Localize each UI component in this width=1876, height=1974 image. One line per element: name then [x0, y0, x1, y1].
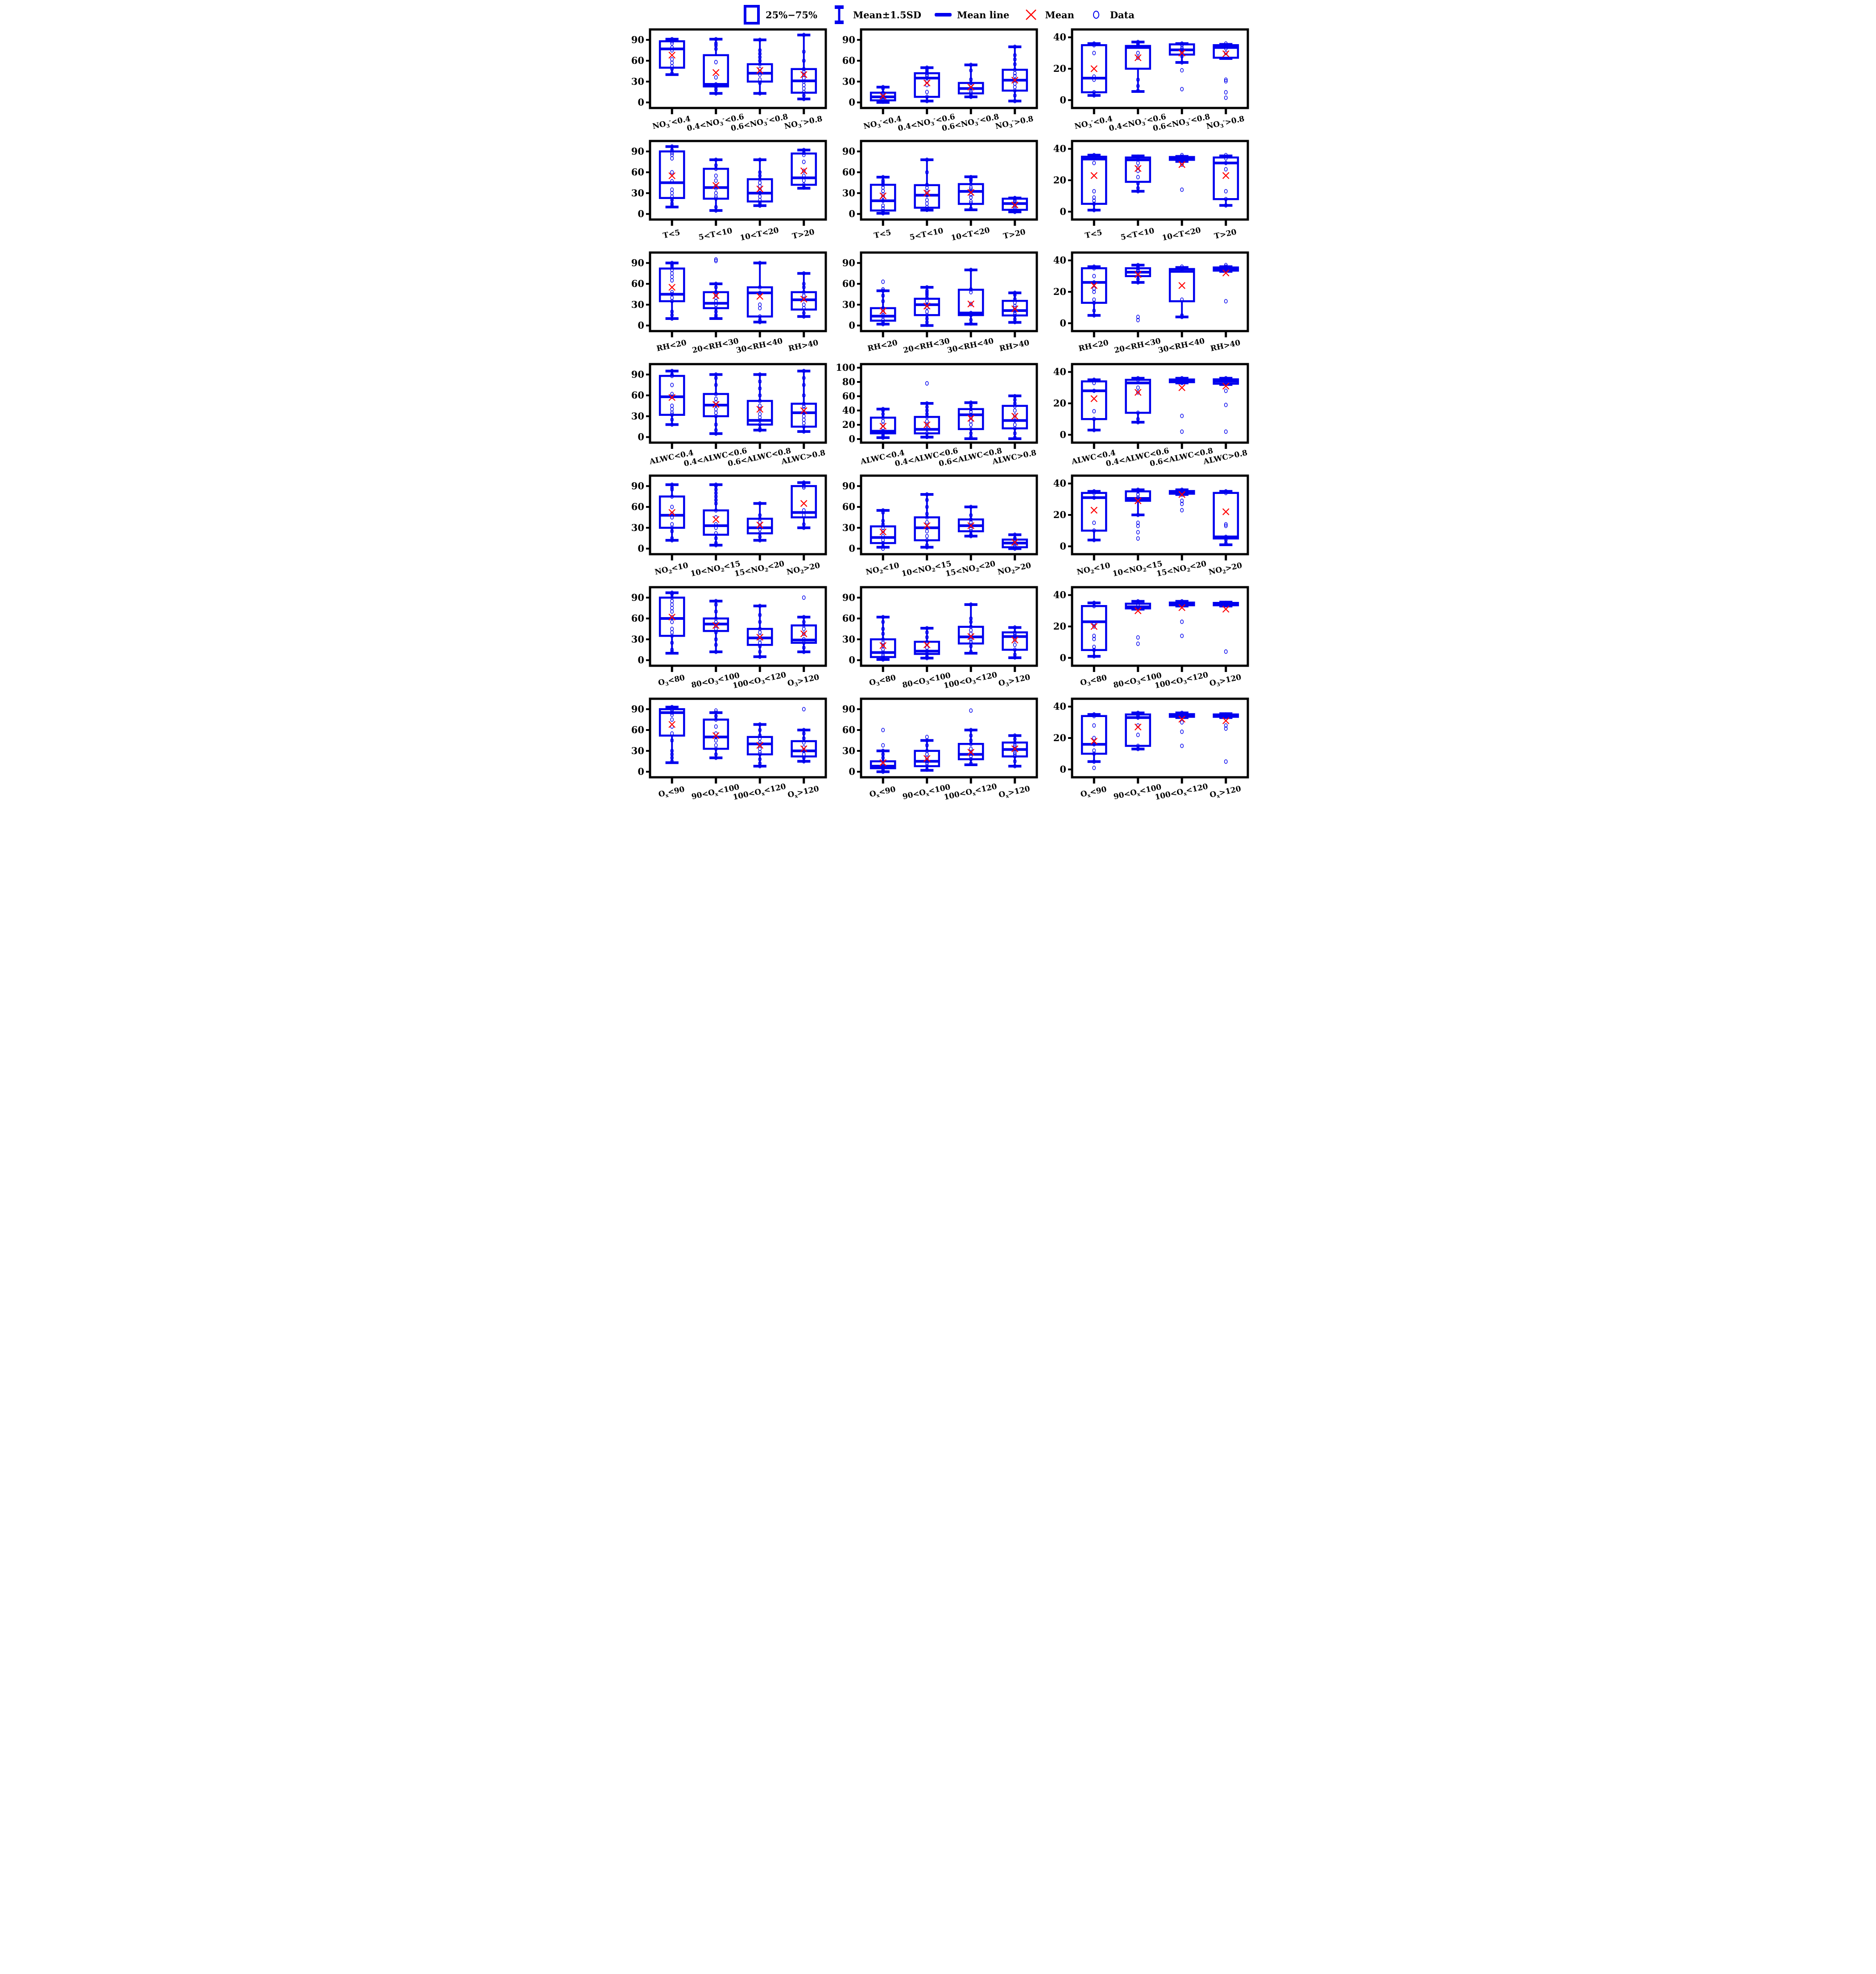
box-group-2 — [748, 502, 772, 542]
x-tick-label: T>20 — [1213, 228, 1238, 241]
whisker-cap-top — [709, 158, 722, 161]
whisker-cap-bottom — [753, 92, 766, 95]
iqr-box — [871, 527, 895, 543]
mean-line — [871, 199, 895, 202]
box-group-3 — [1002, 394, 1027, 440]
y-tick-label: 90 — [631, 703, 644, 714]
iqr-box — [1082, 157, 1106, 204]
iqr-box — [959, 184, 983, 204]
iqr-box — [915, 299, 939, 315]
x-tick-label: Ox<90 — [869, 785, 897, 800]
mean-line — [748, 72, 772, 75]
y-tick-label: 30 — [842, 299, 855, 310]
whisker-cap-bottom — [964, 652, 977, 655]
x-tick-label: 15<NO2<20 — [1156, 559, 1208, 579]
y-tick-label: 20 — [1053, 286, 1066, 297]
data-point-icon — [1225, 96, 1227, 100]
y-tick-label: 90 — [631, 369, 644, 380]
whisker-cap-bottom — [709, 651, 722, 653]
whisker-cap-bottom — [964, 535, 977, 538]
whisker-cap-bottom — [797, 527, 810, 529]
x-tick-label: O3<80 — [657, 673, 686, 688]
boxplot-panel-r4-c2: 020406080100ALWC<0.40.4<ALWC<0.60.6<ALWC… — [832, 361, 1042, 473]
iqr-box — [704, 55, 728, 87]
x-tick-label: NO2>20 — [786, 561, 821, 577]
x-tick-label: T>20 — [1002, 228, 1027, 241]
box-group-2 — [959, 709, 983, 766]
x-tick-label: Ox>120 — [787, 784, 820, 800]
mean-x-icon — [1021, 4, 1041, 25]
data-point-icon — [925, 382, 928, 385]
box-group-0 — [1082, 489, 1106, 542]
box-group-0 — [1082, 153, 1106, 212]
y-tick-label: 60 — [631, 724, 644, 735]
whisker-cap-top — [876, 750, 889, 752]
x-tick-label: NO2<10 — [865, 561, 900, 577]
x-tick-label: 15<NO2<20 — [944, 559, 996, 579]
whisker-cap-top — [709, 282, 722, 285]
mean-line — [1002, 419, 1027, 422]
box-group-1 — [704, 709, 728, 759]
data-point-icon — [1180, 634, 1183, 638]
mean-line — [748, 291, 772, 294]
mean-line — [791, 411, 816, 414]
box-group-0 — [871, 280, 895, 326]
mean-line — [660, 181, 684, 184]
whisker-cap-top — [1008, 394, 1021, 397]
y-tick-label: 0 — [849, 433, 855, 444]
x-tick-label: NO3->0.8 — [1205, 113, 1246, 132]
whisker-cap-bottom — [1131, 421, 1144, 423]
y-tick-label: 40 — [842, 405, 855, 416]
x-tick-label: 10<T<20 — [950, 226, 991, 243]
box-group-3 — [1002, 45, 1027, 103]
whisker-cap-top — [797, 370, 810, 373]
mean-line — [791, 750, 816, 752]
data-point-icon — [1180, 188, 1183, 191]
y-tick-label: 60 — [631, 390, 644, 401]
y-tick-label: 0 — [638, 320, 644, 331]
figure-page: 25%−75%Mean±1.5SDMean lineMeanData 03060… — [621, 0, 1255, 808]
box-group-3 — [1214, 489, 1238, 546]
y-tick-label: 90 — [842, 703, 855, 714]
box-group-1 — [1126, 711, 1150, 751]
y-tick-label: 40 — [1053, 589, 1066, 601]
x-tick-label: 5<T<10 — [1120, 226, 1155, 242]
whisker-cap-top — [797, 729, 810, 731]
y-tick-label: 20 — [1053, 621, 1066, 632]
whisker-cap-bottom — [709, 92, 722, 95]
x-tick-label: 100<Ox<120 — [1154, 782, 1209, 803]
data-point-icon — [1225, 430, 1227, 433]
whisker-cap-top — [709, 600, 722, 602]
box-group-1 — [704, 158, 728, 212]
x-tick-label: Ox>120 — [998, 784, 1031, 800]
box-group-3 — [791, 707, 816, 763]
whisker-cap-bottom — [797, 98, 810, 100]
y-tick-label: 0 — [638, 97, 644, 108]
iqr-box — [1082, 382, 1106, 419]
x-tick-label: NO3-<0.4 — [1073, 113, 1114, 132]
whisker-cap-bottom — [665, 73, 678, 76]
whisker-cap-bottom — [1088, 94, 1101, 97]
x-tick-label: RH<20 — [867, 338, 899, 353]
box-group-0 — [660, 705, 684, 764]
boxplot-panel-r6-c3: 02040O3<8080<O3<100100<O3<120O3>120 — [1044, 585, 1253, 696]
y-tick-label: 60 — [631, 278, 644, 289]
box-group-0 — [1082, 265, 1106, 317]
box-group-2 — [1170, 41, 1194, 91]
boxplot-panel-r5-c3: 02040NO2<1010<NO2<1515<NO2<20NO2>20 — [1044, 473, 1253, 585]
whisker-cap-bottom — [1176, 61, 1189, 64]
box-group-2 — [959, 175, 983, 211]
y-tick-label: 40 — [1053, 701, 1066, 712]
box-group-0 — [1082, 601, 1106, 658]
y-tick-label: 60 — [631, 501, 644, 512]
x-tick-label: 5<T<10 — [698, 226, 733, 242]
data-point-icon — [1093, 766, 1095, 770]
data-point-icon — [1180, 744, 1183, 747]
whisker-cap-bottom — [1088, 429, 1101, 431]
y-tick-label: 20 — [1053, 509, 1066, 520]
whisker-cap-top — [665, 370, 678, 373]
box-group-1 — [1126, 263, 1150, 322]
x-tick-label: T<5 — [1084, 228, 1103, 241]
boxplot-panel-r6-c1: 0306090O3<8080<O3<100100<O3<120O3>120 — [621, 585, 831, 696]
x-tick-label: RH>40 — [1209, 338, 1241, 353]
box-group-3 — [791, 369, 816, 433]
whisker-cap-top — [1008, 626, 1021, 629]
y-tick-label: 90 — [842, 34, 855, 45]
x-tick-label: 30<RH<40 — [946, 336, 994, 355]
legend-item-1: Mean±1.5SD — [829, 4, 921, 25]
boxplot-panel-r4-c3: 02040ALWC<0.40.4<ALWC<0.60.6<ALWC<0.8ALW… — [1044, 361, 1253, 473]
data-point-icon — [1180, 87, 1183, 91]
whisker-cap-top — [1131, 600, 1144, 603]
y-tick-label: 60 — [842, 390, 855, 402]
y-tick-label: 30 — [631, 522, 644, 533]
whisker-cap-top — [920, 739, 933, 742]
box-group-1 — [915, 66, 939, 103]
x-tick-label: 10<T<20 — [1161, 226, 1202, 243]
data-point-icon — [1180, 68, 1183, 72]
box-group-2 — [1170, 376, 1194, 433]
x-tick-label: 20<RH<30 — [903, 336, 951, 355]
whisker-cap-top — [1088, 601, 1101, 604]
x-tick-label: O3<80 — [868, 673, 897, 688]
boxplot-panel-r7-c2: 0306090Ox<9090<Ox<100100<Ox<120Ox>120 — [832, 696, 1042, 808]
x-tick-label: 15<NO2<20 — [733, 559, 785, 579]
box-group-3 — [1214, 601, 1238, 653]
whisker-cap-top — [1008, 46, 1021, 48]
boxplot-panel-r3-c2: 0306090RH<2020<RH<3030<RH<40RH>40 — [832, 250, 1042, 361]
box-group-0 — [660, 483, 684, 542]
whisker-cap-top — [964, 506, 977, 508]
box-group-1 — [915, 493, 939, 549]
whisker-cap-bottom — [1008, 100, 1021, 102]
whisker-cap-bottom — [1008, 656, 1021, 659]
box-group-1 — [1126, 376, 1150, 424]
data-point-icon — [1225, 403, 1227, 406]
y-tick-label: 60 — [842, 166, 855, 178]
whisker-cap-bottom — [1131, 748, 1144, 751]
whisker-cap-bottom — [1088, 760, 1101, 763]
box-group-1 — [915, 286, 939, 327]
whisker-cap-bottom — [1088, 539, 1101, 541]
box-group-0 — [660, 591, 684, 655]
boxplot-panel-r7-c3: 02040Ox<9090<Ox<100100<Ox<120Ox>120 — [1044, 696, 1253, 808]
x-tick-label: 10<T<20 — [739, 226, 779, 243]
whisker-cap-top — [964, 729, 977, 731]
whisker-cap-bottom — [665, 652, 678, 655]
whisker-cap-top — [797, 272, 810, 275]
box-group-3 — [791, 272, 816, 319]
y-tick-label: 60 — [842, 55, 855, 66]
mean-line-icon — [933, 4, 953, 25]
box-group-1 — [704, 599, 728, 654]
data-point-icon — [1225, 389, 1227, 393]
whisker-cap-bottom — [709, 432, 722, 435]
mean-line — [1082, 281, 1106, 284]
boxplot-panel-r2-c2: 0306090T<55<T<1010<T<20T>20 — [832, 138, 1042, 250]
whisker-cap-bottom — [797, 651, 810, 653]
whisker-cap-top — [753, 373, 766, 376]
y-tick-label: 90 — [631, 34, 644, 45]
y-tick-label: 0 — [638, 655, 644, 666]
box-group-1 — [1126, 154, 1150, 193]
data-point-icon — [1180, 508, 1183, 512]
whisker-cap-bottom — [797, 760, 810, 763]
box-group-1 — [704, 373, 728, 435]
x-tick-label: NO2>20 — [997, 561, 1032, 577]
mean-line — [1082, 496, 1106, 499]
y-tick-label: 90 — [631, 592, 644, 603]
box-group-2 — [1170, 153, 1194, 191]
mean-line — [915, 527, 939, 529]
box-group-2 — [959, 603, 983, 655]
y-tick-label: 30 — [842, 634, 855, 645]
data-point-icon — [882, 728, 884, 732]
x-tick-label: Ox>120 — [1209, 784, 1242, 800]
whisker-cap-top — [964, 269, 977, 271]
iqr-box — [704, 720, 728, 749]
data-point-icon — [1137, 531, 1139, 534]
whisker-cap-bottom — [1219, 204, 1232, 207]
x-tick-label: 20<RH<30 — [1114, 336, 1162, 355]
box-group-2 — [1170, 265, 1194, 319]
box-icon — [741, 4, 762, 25]
y-tick-label: 0 — [849, 208, 855, 220]
boxplot-grid: 0306090NO3-<0.40.4<NO3-<0.60.6<NO3-<0.8N… — [621, 27, 1255, 808]
whisker-icon — [829, 4, 849, 25]
y-tick-label: 0 — [1060, 763, 1067, 775]
y-tick-label: 20 — [1053, 63, 1066, 74]
box-group-3 — [1214, 41, 1238, 100]
y-tick-label: 0 — [849, 766, 855, 777]
whisker-cap-bottom — [665, 317, 678, 320]
box-group-3 — [1214, 263, 1238, 303]
y-tick-label: 80 — [842, 376, 855, 387]
whisker-cap-bottom — [665, 761, 678, 764]
box-group-2 — [748, 373, 772, 432]
mean-line — [1214, 162, 1238, 164]
y-tick-label: 60 — [842, 724, 855, 735]
y-tick-label: 40 — [1053, 478, 1066, 489]
y-tick-label: 0 — [638, 431, 644, 443]
box-group-0 — [871, 175, 895, 215]
whisker-cap-top — [876, 408, 889, 411]
x-tick-label: 100<O3<120 — [943, 671, 998, 692]
legend-item-3: Mean — [1021, 4, 1074, 25]
iqr-box — [1126, 380, 1150, 413]
whisker-cap-bottom — [753, 539, 766, 542]
whisker-cap-top — [920, 158, 933, 161]
box-group-3 — [791, 596, 816, 654]
iqr-box — [660, 376, 684, 415]
whisker-cap-top — [1008, 734, 1021, 737]
x-tick-label: O3>120 — [998, 673, 1031, 689]
boxplot-panel-r2-c3: 02040T<55<T<1010<T<20T>20 — [1044, 138, 1253, 250]
y-tick-label: 0 — [1060, 94, 1067, 105]
whisker-cap-bottom — [1008, 211, 1021, 213]
box-group-3 — [791, 33, 816, 101]
whisker-cap-bottom — [920, 657, 933, 659]
mean-line — [1214, 535, 1238, 538]
x-tick-label: 100<Ox<120 — [732, 782, 787, 803]
box-group-0 — [871, 85, 895, 104]
x-tick-label: T<5 — [662, 228, 681, 241]
data-point-icon — [1225, 299, 1227, 303]
mean-line — [1214, 714, 1238, 717]
whisker-cap-top — [920, 493, 933, 496]
box-group-0 — [1082, 378, 1106, 432]
box-group-2 — [959, 63, 983, 99]
y-tick-label: 90 — [631, 145, 644, 157]
x-tick-label: T<5 — [873, 228, 892, 241]
box-group-0 — [871, 509, 895, 551]
whisker-cap-top — [709, 373, 722, 376]
legend-label: Mean line — [957, 9, 1009, 21]
y-tick-label: 0 — [1060, 317, 1067, 328]
whisker-cap-bottom — [1088, 314, 1101, 317]
y-tick-label: 0 — [849, 97, 855, 108]
data-point-icon — [969, 709, 972, 712]
y-tick-label: 30 — [842, 522, 855, 533]
whisker-cap-bottom — [964, 95, 977, 98]
whisker-cap-top — [920, 402, 933, 405]
y-tick-label: 0 — [1060, 429, 1067, 440]
legend-label: Mean — [1045, 9, 1074, 21]
box-group-2 — [748, 604, 772, 659]
whisker-cap-bottom — [709, 756, 722, 759]
legend-label: Mean±1.5SD — [853, 9, 921, 21]
x-tick-label: RH>40 — [998, 338, 1030, 353]
y-tick-label: 0 — [638, 208, 644, 220]
whisker-cap-top — [964, 63, 977, 66]
y-tick-label: 90 — [631, 257, 644, 268]
legend-item-4: Data — [1086, 4, 1135, 25]
y-tick-label: 60 — [842, 501, 855, 512]
boxplot-panel-r1-c2: 0306090NO3-<0.40.4<NO3-<0.60.6<NO3-<0.8N… — [832, 27, 1042, 138]
data-point-icon — [802, 707, 805, 711]
x-tick-label: 100<O3<120 — [732, 671, 787, 692]
y-tick-label: 90 — [631, 480, 644, 491]
x-tick-label: 30<RH<40 — [1157, 336, 1205, 355]
whisker-cap-top — [753, 261, 766, 264]
y-tick-label: 90 — [842, 592, 855, 603]
box-group-1 — [915, 626, 939, 660]
whisker-cap-bottom — [876, 771, 889, 773]
x-tick-label: NO2>20 — [1208, 561, 1243, 577]
box-group-1 — [704, 257, 728, 320]
data-point-icon — [1180, 620, 1183, 623]
mean-line — [1082, 743, 1106, 746]
whisker-cap-top — [876, 86, 889, 88]
y-tick-label: 30 — [631, 299, 644, 310]
whisker-cap-bottom — [1088, 655, 1101, 658]
y-tick-label: 0 — [1060, 652, 1067, 663]
x-tick-label: O3>120 — [1209, 673, 1242, 689]
y-tick-label: 30 — [631, 76, 644, 87]
x-tick-label: RH<20 — [1078, 338, 1110, 353]
box-group-1 — [1126, 599, 1150, 645]
box-group-2 — [748, 722, 772, 768]
whisker-cap-bottom — [665, 206, 678, 208]
mean-line — [748, 192, 772, 195]
iqr-box — [959, 744, 983, 759]
boxplot-panel-r7-c1: 0306090Ox<9090<Ox<100100<Ox<120Ox>120 — [621, 696, 831, 808]
y-tick-label: 0 — [1060, 540, 1067, 552]
box-group-1 — [704, 483, 728, 547]
y-tick-label: 30 — [631, 411, 644, 422]
whisker-cap-top — [920, 627, 933, 630]
x-tick-label: 100<Ox<120 — [943, 782, 998, 803]
y-tick-label: 60 — [842, 613, 855, 624]
mean-line — [1126, 382, 1150, 384]
box-group-1 — [915, 735, 939, 771]
boxplot-panel-r3-c3: 02040RH<2020<RH<3030<RH<40RH>40 — [1044, 250, 1253, 361]
whisker-cap-top — [964, 603, 977, 606]
whisker-cap-bottom — [797, 315, 810, 318]
whisker-cap-bottom — [709, 209, 722, 212]
box-group-0 — [660, 261, 684, 320]
y-tick-label: 0 — [638, 766, 644, 777]
box-group-3 — [1002, 196, 1027, 214]
whisker-cap-bottom — [1088, 209, 1101, 211]
x-tick-label: O3<80 — [1080, 673, 1108, 688]
y-tick-label: 30 — [842, 187, 855, 199]
y-tick-label: 40 — [1053, 366, 1066, 377]
whisker-cap-bottom — [920, 436, 933, 439]
whisker-cap-bottom — [753, 429, 766, 431]
x-tick-label: NO3-<0.4 — [862, 113, 903, 132]
x-tick-label: 30<RH<40 — [735, 336, 783, 355]
boxplot-panel-r3-c1: 0306090RH<2020<RH<3030<RH<40RH>40 — [621, 250, 831, 361]
data-point-icon — [1225, 91, 1227, 94]
legend-label: Data — [1110, 9, 1135, 21]
whisker-cap-bottom — [665, 423, 678, 426]
mean-line — [1082, 390, 1106, 392]
y-tick-label: 60 — [631, 55, 644, 66]
data-point-icon — [882, 280, 884, 283]
whisker-cap-bottom — [920, 100, 933, 102]
y-tick-label: 0 — [638, 543, 644, 554]
box-group-2 — [748, 158, 772, 207]
box-group-3 — [1002, 626, 1027, 659]
y-tick-label: 0 — [849, 655, 855, 666]
y-tick-label: 20 — [1053, 398, 1066, 409]
box-group-2 — [748, 261, 772, 324]
